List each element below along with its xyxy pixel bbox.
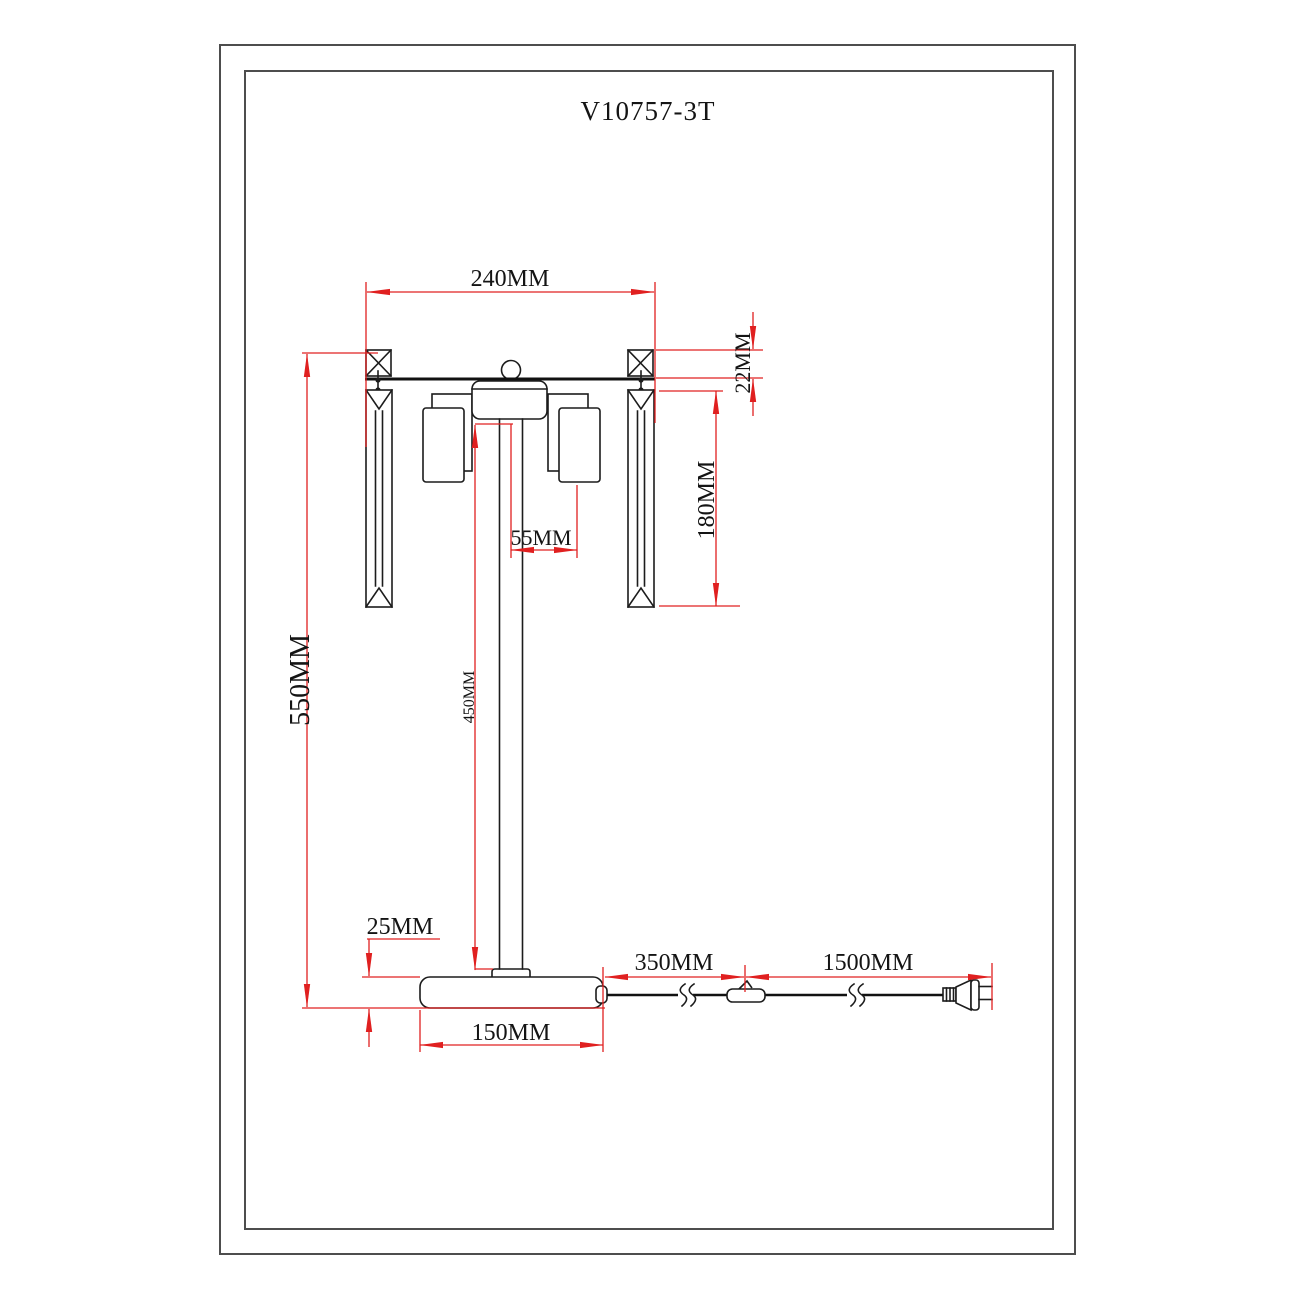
dim-label-240mm: 240MM <box>471 266 550 292</box>
shade-left-front <box>423 408 464 482</box>
crystal-pendant-left <box>366 390 392 607</box>
drawing-title: V10757-3T <box>581 96 716 126</box>
finial-ball <box>502 361 521 380</box>
outer-border <box>220 45 1075 1254</box>
cord-outlet <box>596 986 607 1003</box>
dim-label-550mm: 550MM <box>285 634 316 726</box>
cord-break-mark-2 <box>849 984 864 1006</box>
plug <box>943 980 992 1010</box>
dim-label-180mm: 180MM <box>694 461 720 540</box>
shade-right-front <box>559 408 600 482</box>
crystal-pendant-right <box>628 390 654 607</box>
base <box>420 977 603 1008</box>
dim-label-1500mm: 1500MM <box>823 950 914 976</box>
dim-label-350mm: 350MM <box>635 950 714 976</box>
cord-break-mark-1 <box>680 984 695 1006</box>
drawing-sheet: V10757-3T 240MM 55MM 25MM 150MM 350MM 15… <box>0 0 1300 1300</box>
inline-switch <box>727 981 765 1002</box>
inner-border <box>245 71 1053 1229</box>
dim-label-450mm: 450MM <box>461 671 478 723</box>
dim-label-22mm: 22MM <box>730 332 755 393</box>
dim-label-55mm: 55MM <box>510 525 571 550</box>
dim-label-25mm: 25MM <box>367 914 434 940</box>
pole-collar <box>492 969 530 977</box>
dim-label-150mm: 150MM <box>472 1020 551 1046</box>
lamp-body <box>472 381 547 419</box>
technical-drawing: V10757-3T 240MM 55MM 25MM 150MM 350MM 15… <box>0 0 1300 1300</box>
